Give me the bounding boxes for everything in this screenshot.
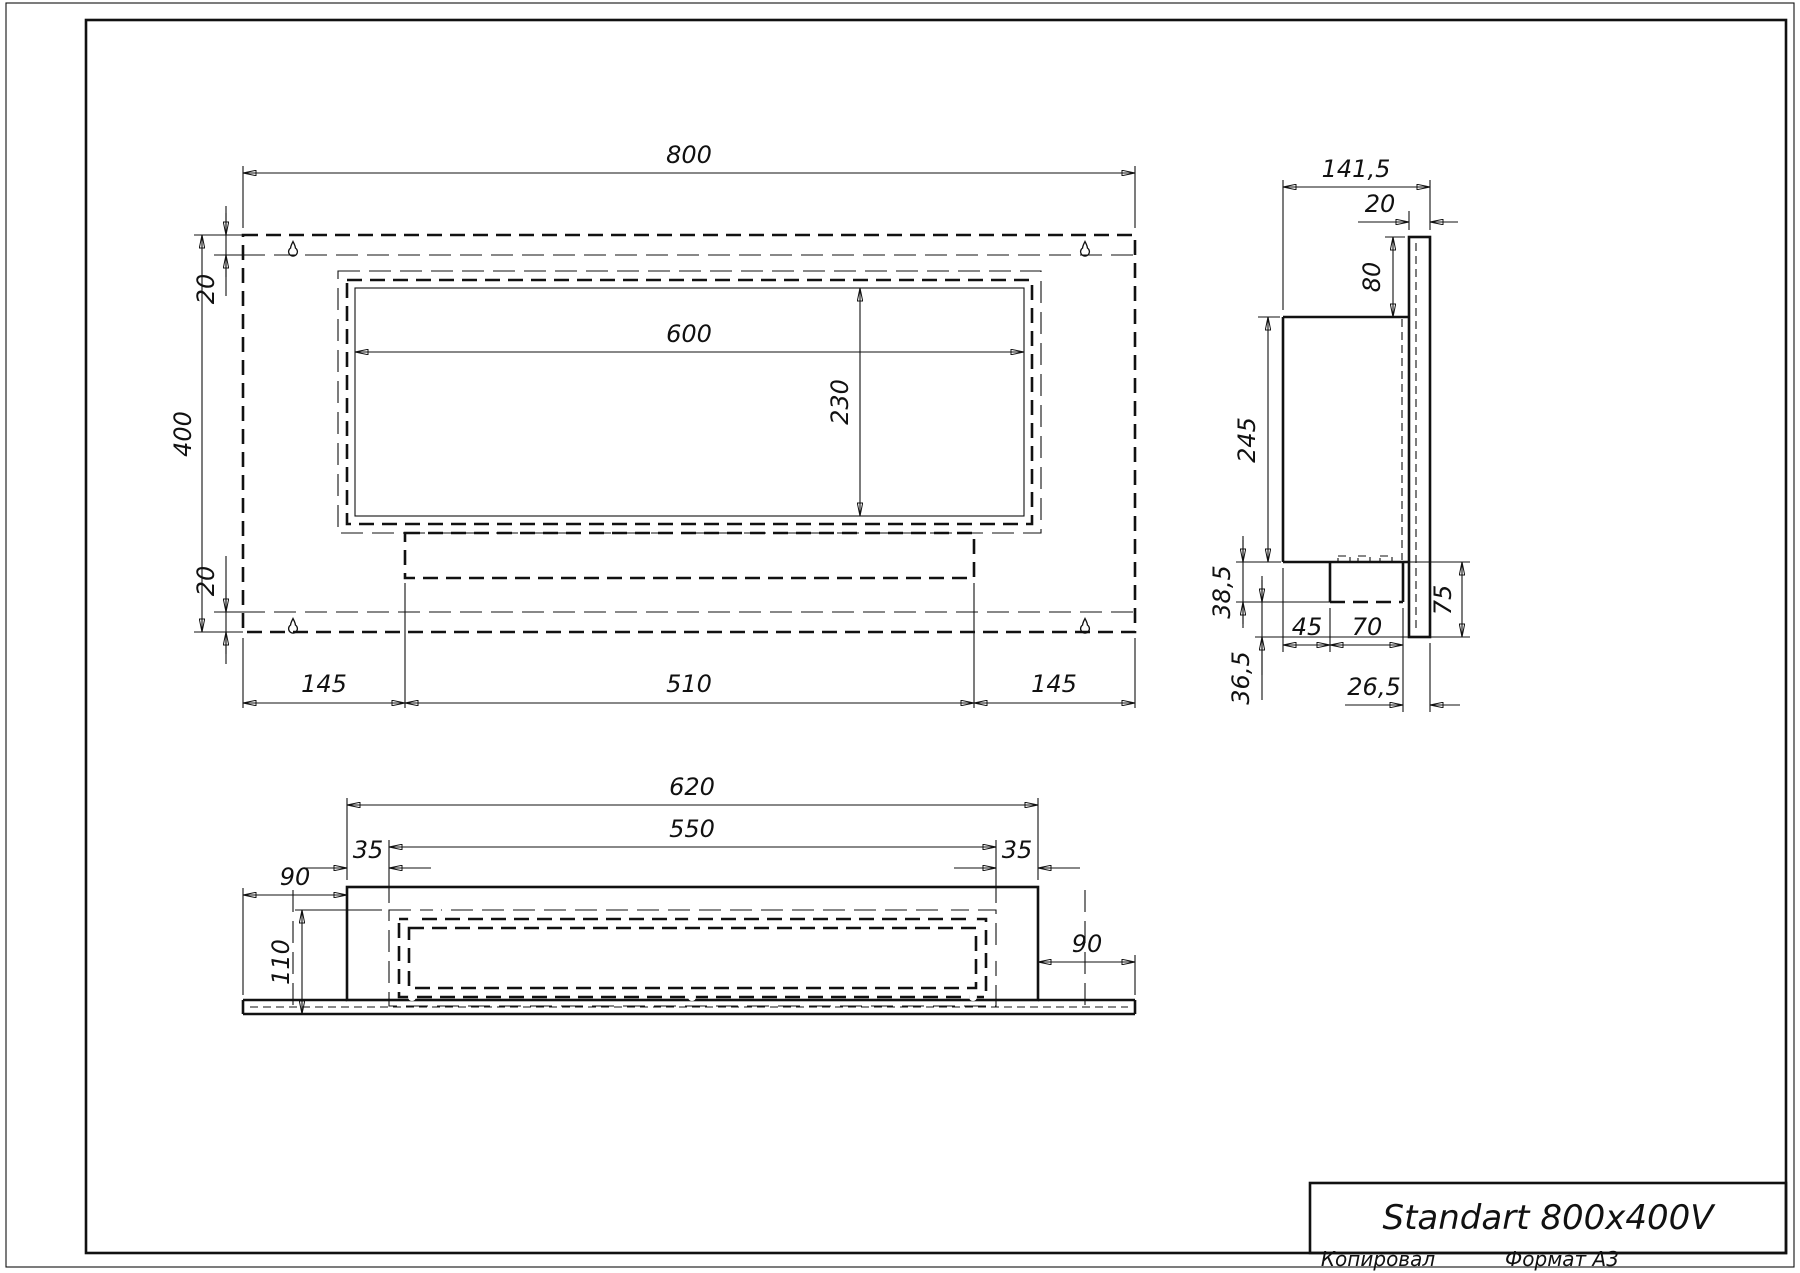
dim-label-plate-thickness: 20 [1365, 190, 1396, 218]
dim-label-shelf-height: 38,5 [1208, 565, 1236, 618]
dim-label-body-height: 245 [1233, 417, 1261, 463]
page-frame [6, 3, 1794, 1267]
dim-label-front-top-inset: 20 [192, 274, 220, 305]
dim-label-front-width: 800 [666, 141, 712, 169]
title-block: Standart 800x400V Копировал Формат А3 [1310, 1183, 1786, 1271]
dim-label-window-width: 600 [666, 320, 712, 348]
keyhole-icon [1081, 242, 1090, 257]
dim-label-body-width: 620 [669, 773, 715, 801]
dim-label-right-inset: 35 [1002, 836, 1033, 864]
dim-label-right-margin: 145 [1031, 670, 1077, 698]
dim-label-burner-width: 510 [666, 670, 712, 698]
dim-label-channel-width: 70 [1352, 613, 1383, 641]
dim-label-front-height: 400 [169, 411, 197, 457]
dim-label-depth: 141,5 [1322, 155, 1391, 183]
opening-outline [409, 928, 976, 988]
dim-label-window-height: 230 [826, 379, 854, 425]
copied-label: Копировал [1321, 1247, 1435, 1271]
dim-label-front-bottom-inset: 20 [192, 566, 220, 597]
dim-label-flange-height: 75 [1429, 585, 1457, 616]
dim-label-left-margin: 145 [301, 670, 347, 698]
body-outline [347, 887, 1038, 1000]
burner-tray [405, 533, 974, 578]
side-view: 141,5 20 80 245 38,5 36,5 75 [1208, 155, 1470, 712]
drawing-title: Standart 800x400V [1382, 1198, 1716, 1238]
drawing-sheet: 800 400 20 20 600 230 145 510 [0, 0, 1800, 1273]
dim-label-depth: 110 [267, 939, 295, 985]
bottom-view: 620 550 35 35 90 110 90 [243, 773, 1135, 1014]
dim-label-right-overhang: 90 [1072, 930, 1103, 958]
panel-outline [243, 235, 1135, 632]
dim-label-channel-offset: 45 [1292, 613, 1323, 641]
keyhole-icon [289, 242, 298, 257]
dim-label-left-overhang: 90 [280, 863, 311, 891]
dim-label-bottom-offset: 36,5 [1227, 651, 1255, 704]
drawing-canvas: 800 400 20 20 600 230 145 510 [0, 0, 1800, 1273]
wall-plate [1409, 237, 1430, 637]
dim-label-left-inset: 35 [353, 836, 384, 864]
dim-label-top-offset: 80 [1358, 262, 1386, 293]
dim-label-lip: 26,5 [1347, 673, 1400, 701]
format-label: Формат А3 [1505, 1247, 1619, 1271]
dim-label-opening-width: 550 [669, 815, 715, 843]
front-view: 800 400 20 20 600 230 145 510 [169, 141, 1135, 708]
